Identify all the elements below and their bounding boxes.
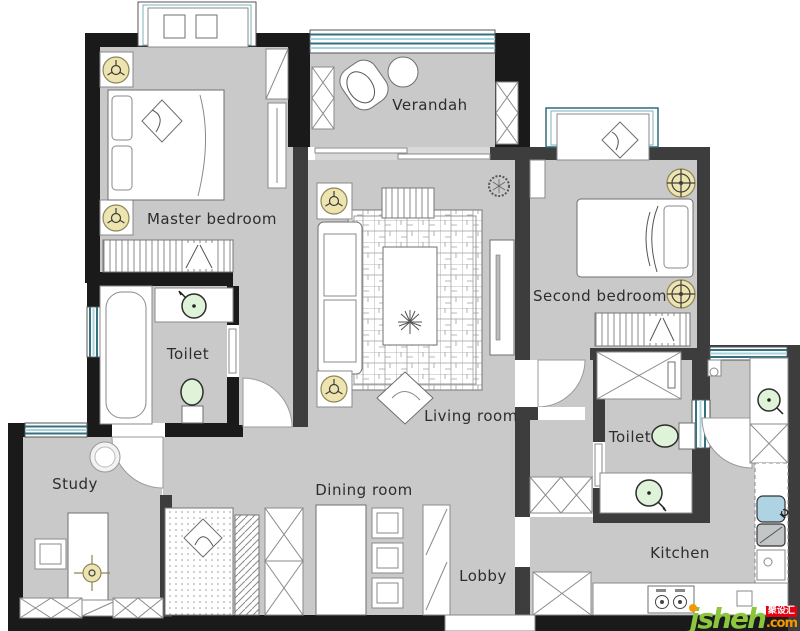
ceiling-lamp-icon [667, 280, 695, 308]
verandah-cabinet [496, 82, 518, 144]
door-leaf-toilet-left [229, 329, 236, 373]
cabinet [530, 160, 545, 198]
room-label-verandah: Verandah [392, 96, 467, 114]
wall [220, 425, 243, 437]
pillow [112, 96, 132, 140]
round-table [388, 57, 418, 87]
room-label-lobby: Lobby [459, 567, 507, 585]
shower-control [668, 362, 675, 388]
room-label-dining-room: Dining room [315, 481, 413, 499]
tv-mat [382, 188, 434, 218]
watermark-brand: jsheh [690, 608, 765, 630]
ceiling-lamp-icon [667, 169, 695, 197]
watermark: jsheh 聚设汇 .com [690, 606, 797, 630]
wall [515, 567, 530, 617]
wall [515, 407, 538, 420]
low-cabinet [20, 598, 82, 618]
wall [593, 512, 710, 523]
pillow [112, 146, 132, 190]
bay-window-second-bedroom [546, 108, 658, 160]
ceiling-speaker-icon [103, 57, 129, 83]
room-label-study: Study [52, 475, 98, 493]
tv-bench [490, 240, 514, 355]
watermark-dot-icon [689, 604, 697, 612]
room-label-toilet-left: Toilet [166, 345, 209, 363]
dining-table [316, 505, 366, 615]
wall [788, 345, 800, 631]
shoe-cabinet [530, 477, 592, 513]
ceiling-speaker-icon [321, 376, 347, 402]
kitchen-sink-icon [757, 496, 785, 522]
sofa-cushion [324, 300, 356, 362]
floor-corridor-gap [233, 272, 293, 286]
door-gap-study [112, 423, 165, 437]
room-label-second-bedroom: Second bedroom [533, 287, 667, 305]
wall [8, 423, 23, 623]
ceiling-speaker-icon [103, 205, 129, 231]
floor-plan-drawing: Master bedroom Verandah Second bedroom T… [0, 0, 800, 631]
sideboard [423, 505, 450, 615]
wall [697, 147, 710, 360]
sofa-cushion [324, 234, 356, 296]
window-study [25, 423, 87, 437]
toilet-bowl-icon [181, 379, 203, 423]
wall [100, 272, 233, 286]
stool-inner [95, 447, 115, 467]
ceiling-speaker-icon [321, 188, 347, 214]
window-verandah [310, 30, 495, 53]
floor-plan: Master bedroom Verandah Second bedroom T… [0, 0, 800, 631]
pillow [664, 206, 688, 268]
wall [288, 33, 310, 147]
dresser [235, 515, 259, 615]
verandah-cabinet [312, 67, 334, 129]
low-cabinet [113, 598, 163, 618]
room-label-living-room: Living room [424, 407, 518, 425]
door-threshold [538, 407, 585, 420]
entrance-door [445, 615, 535, 631]
room-label-toilet-right: Toilet [608, 428, 651, 446]
bathtub [100, 286, 152, 424]
room-label-master-bedroom: Master bedroom [147, 210, 277, 228]
wall [515, 420, 530, 517]
window-toilet-left [87, 307, 100, 357]
wall [85, 33, 100, 283]
toilet-bowl-icon [652, 423, 695, 449]
watermark-tld: .com [766, 617, 797, 630]
tv [496, 255, 500, 340]
wardrobe-master [103, 240, 233, 272]
desk [68, 513, 108, 603]
door-gap-second-bedroom [530, 360, 538, 407]
wall [515, 147, 530, 360]
stove [648, 586, 694, 613]
room-label-kitchen: Kitchen [650, 544, 710, 562]
door-gap-lobby-kitchen [515, 517, 530, 567]
wardrobe-panel [648, 316, 676, 343]
bay-window-master [138, 2, 256, 47]
wall [293, 147, 308, 427]
sliding-door-verandah [315, 147, 490, 160]
